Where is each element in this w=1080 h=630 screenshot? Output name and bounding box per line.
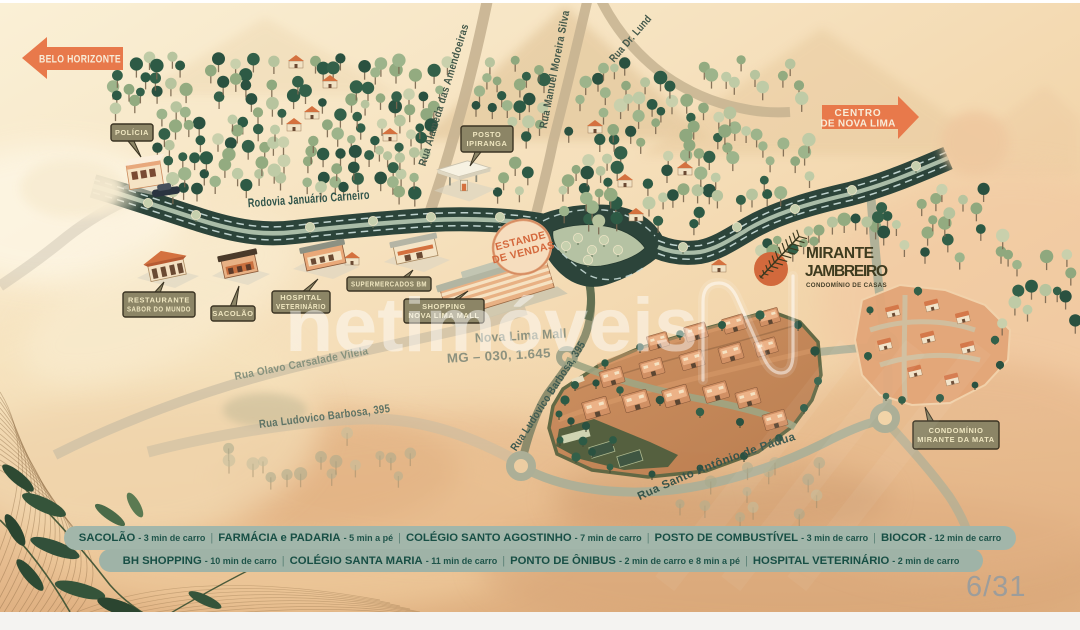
svg-text:IPIRANGA: IPIRANGA — [467, 139, 508, 148]
svg-text:CENTRO: CENTRO — [834, 108, 881, 119]
svg-text:SACOLÃO: SACOLÃO — [212, 309, 253, 318]
svg-text:RESTAURANTE: RESTAURANTE — [128, 296, 190, 305]
svg-text:MIRANTE DA MATA: MIRANTE DA MATA — [917, 435, 994, 444]
svg-text:BELO HORIZONTE: BELO HORIZONTE — [39, 54, 121, 66]
svg-text:POLÍCIA: POLÍCIA — [115, 128, 149, 137]
svg-text:MIRANTE: MIRANTE — [806, 245, 876, 262]
svg-text:CONDOMÍNIO: CONDOMÍNIO — [929, 426, 984, 435]
svg-text:DE NOVA LIMA: DE NOVA LIMA — [820, 119, 895, 130]
svg-text:POSTO: POSTO — [473, 130, 502, 139]
svg-text:CONDOMÍNIO DE CASAS: CONDOMÍNIO DE CASAS — [806, 281, 888, 289]
svg-text:netimóveis: netimóveis — [285, 283, 698, 368]
svg-text:JAMBREIRO: JAMBREIRO — [805, 263, 889, 280]
svg-text:SABOR DO MUNDO: SABOR DO MUNDO — [127, 305, 191, 314]
